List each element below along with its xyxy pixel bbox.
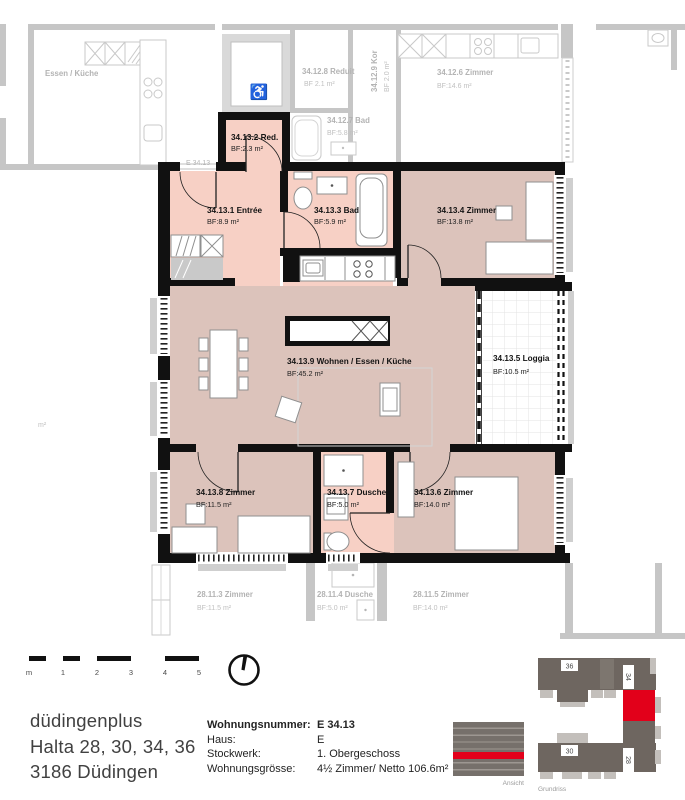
- info-value: 1. Obergeschoss: [317, 747, 448, 762]
- neighbor-area: BF:5.0 m²: [317, 605, 348, 612]
- neighbor-label: 34.12.8 Reduit: [302, 67, 355, 76]
- neighbor-area: BF:14.6 m²: [437, 83, 472, 90]
- room-area: BF:14.0 m²: [414, 500, 451, 509]
- north-arrow-icon: [222, 648, 266, 692]
- project-name: düdingenplus: [30, 708, 195, 734]
- floorplan-page: ♿: [0, 0, 685, 800]
- scale-tick: 1: [61, 668, 65, 677]
- room-area: BF:2.3 m²: [231, 144, 264, 153]
- room-label: 34.13.4 Zimmer: [437, 206, 497, 215]
- room-label: 34.13.7 Dusche: [327, 488, 387, 497]
- wheelchair-icon: ♿: [250, 83, 269, 101]
- address-city: 3186 Düdingen: [30, 759, 195, 785]
- neighbor-area: BF 2.1 m²: [304, 81, 335, 88]
- highlighted-floor: [453, 752, 524, 759]
- neighbor-area: BF:5.8 m²: [327, 130, 358, 137]
- neighbor-area: BF:11.5 m²: [197, 605, 232, 612]
- room-label: 34.13.9 Wohnen / Essen / Küche: [287, 357, 412, 366]
- scale-unit: m: [26, 668, 32, 677]
- neighbor-label: 34.12.9 Kor: [370, 50, 379, 92]
- neighbor-label: 28.11.3 Zimmer: [197, 590, 253, 599]
- room-area: BF:5.0 m²: [327, 500, 360, 509]
- neighbor-area: BF 2.0 m²: [384, 61, 391, 92]
- neighbor-label: 28.11.4 Dusche: [317, 590, 374, 599]
- room-area: BF:13.8 m²: [437, 217, 474, 226]
- scale-tick: 2: [95, 668, 99, 677]
- info-value: 4½ Zimmer/ Netto 106.6m²: [317, 762, 448, 777]
- info-row: Stockwerk: 1. Obergeschoss: [207, 747, 448, 762]
- room-area: BF:8.9 m²: [207, 217, 240, 226]
- room-area: BF:11.5 m²: [196, 500, 232, 509]
- floorplan-drawing: ♿: [0, 0, 685, 648]
- elevation-locator: Ansicht: [453, 722, 524, 787]
- project-address: düdingenplus Halta 28, 30, 34, 36 3186 D…: [30, 708, 195, 785]
- room-label: 34.13.6 Zimmer: [414, 488, 474, 497]
- room-label: 34.13.8 Zimmer: [196, 488, 256, 497]
- building-number: 34: [624, 673, 631, 681]
- room-label: 34.13.2 Red.: [231, 133, 278, 142]
- room-area: BF:5.9 m²: [314, 217, 347, 226]
- info-label: Stockwerk:: [207, 747, 317, 762]
- room-label: 34.13.5 Loggia: [493, 354, 550, 363]
- info-label: Wohnungsnummer:: [207, 718, 317, 733]
- footer: m 1 2 3 4 5 düdingenplus Halta 28, 30, 3…: [0, 648, 685, 800]
- elevation-floors: [453, 722, 524, 776]
- info-label: Haus:: [207, 733, 317, 748]
- neighbor-label: 28.11.5 Zimmer: [413, 590, 469, 599]
- entry-tag: E 34.13: [186, 160, 210, 167]
- faint-area-label: m²: [38, 422, 47, 429]
- neighbor-label: 34.12.6 Zimmer: [437, 68, 493, 77]
- info-row: Wohnungsgrösse: 4½ Zimmer/ Netto 106.6m²: [207, 762, 448, 777]
- scale-tick: 4: [163, 668, 167, 677]
- address-street: Halta 28, 30, 34, 36: [30, 734, 195, 760]
- info-row: Wohnungsnummer: E 34.13: [207, 718, 448, 733]
- building-number: 28: [624, 756, 631, 764]
- siteplan-locator: 36 34 30 28 Grundriss: [533, 650, 685, 796]
- room-area: BF:45.2 m²: [287, 369, 324, 378]
- scale-bar: m 1 2 3 4 5: [20, 654, 220, 684]
- neighbor-label: 34.12.7 Bad: [327, 116, 370, 125]
- room-label: 34.13.1 Entrée: [207, 206, 263, 215]
- siteplan-label: Grundriss: [538, 786, 567, 793]
- highlighted-apartment: [623, 690, 655, 721]
- neighbor-area: BF:14.0 m²: [413, 605, 448, 612]
- building-number: 30: [566, 749, 574, 756]
- building-number: 36: [566, 664, 574, 671]
- room-label: 34.13.3 Bad: [314, 206, 359, 215]
- room-area: BF:10.5 m²: [493, 367, 530, 376]
- info-label: Wohnungsgrösse:: [207, 762, 317, 777]
- neighbor-label: Essen / Küche: [45, 69, 99, 78]
- elevation-diagram: [453, 722, 524, 776]
- info-value: E 34.13: [317, 718, 448, 733]
- scale-tick: 5: [197, 668, 201, 677]
- elevation-label: Ansicht: [453, 780, 524, 787]
- info-row: Haus: E: [207, 733, 448, 748]
- scale-tick: 3: [129, 668, 133, 677]
- apartment-info-table: Wohnungsnummer: E 34.13 Haus: E Stockwer…: [207, 718, 448, 776]
- info-value: E: [317, 733, 448, 748]
